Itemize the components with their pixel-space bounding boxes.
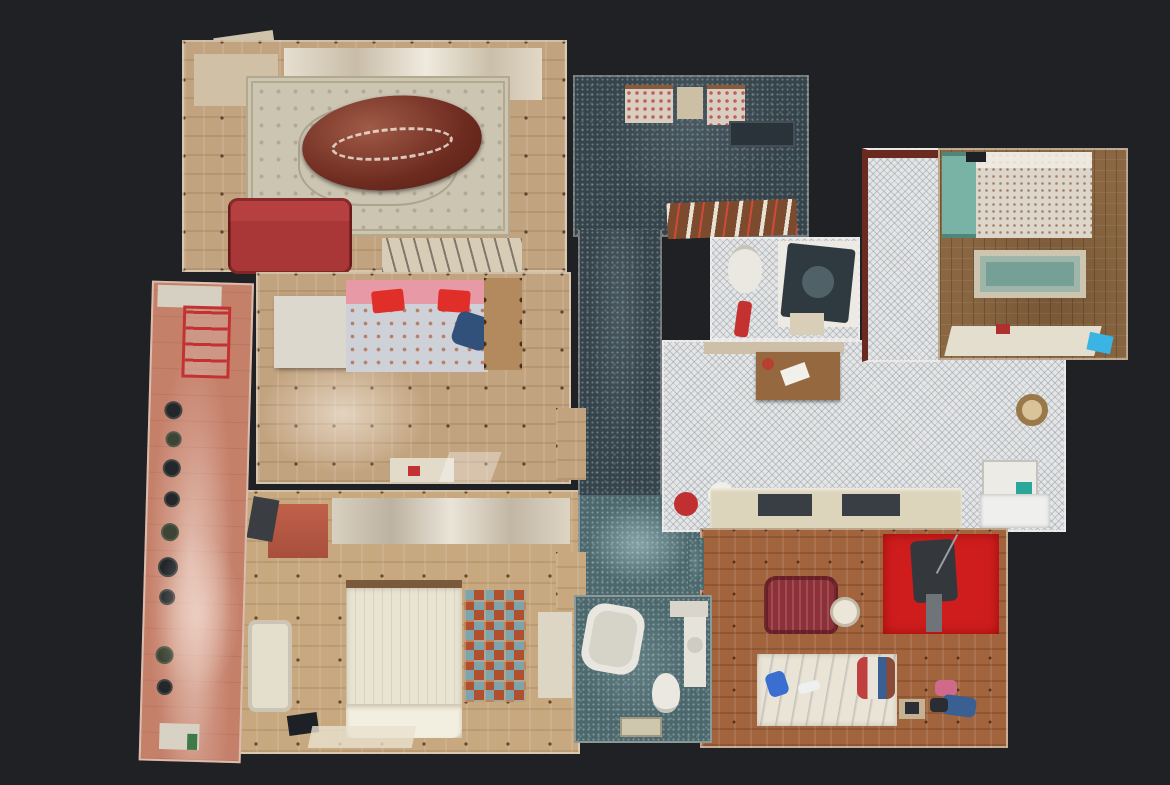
red-sofa — [228, 198, 352, 274]
side-shelf — [538, 612, 572, 698]
stove — [842, 494, 900, 516]
clothes-dark — [930, 698, 948, 712]
pillow-band — [976, 152, 1092, 168]
teal-pillows — [942, 152, 976, 238]
room-bedroom-middle[interactable] — [256, 272, 571, 484]
floor-clutter — [308, 726, 417, 748]
teal-bucket — [1016, 482, 1032, 494]
stool — [899, 699, 925, 719]
round-basket — [1016, 394, 1048, 426]
bench-sketches — [382, 238, 522, 274]
backpack — [857, 657, 895, 699]
lace-runner — [330, 123, 455, 165]
room-study[interactable] — [700, 528, 1008, 748]
paper-sheet — [780, 362, 810, 386]
double-bed — [346, 588, 462, 738]
tub-basin — [587, 609, 640, 670]
room-corridor[interactable] — [578, 230, 662, 498]
room-balcony[interactable] — [139, 281, 254, 764]
bath-mat — [620, 717, 662, 737]
washing-machine — [780, 243, 855, 324]
checkered-rug — [464, 590, 526, 702]
teal-rug — [974, 250, 1086, 298]
toilet — [728, 245, 762, 293]
room-bathroom[interactable] — [574, 595, 712, 743]
red-folding-chair — [181, 305, 231, 378]
plant-pot — [163, 459, 181, 477]
plant-pot — [164, 401, 182, 419]
armchair-white — [248, 620, 292, 712]
floorplan-canvas — [0, 0, 1170, 785]
maroon-armchair — [764, 576, 838, 634]
dark-object — [905, 702, 919, 714]
sink — [758, 494, 812, 516]
washer-drum — [801, 264, 836, 299]
room-bedroom-right[interactable] — [938, 148, 1128, 360]
wc-clutter — [790, 313, 824, 335]
round-side-table — [830, 597, 860, 627]
chair-base — [926, 594, 942, 632]
mirror-glint — [439, 452, 502, 482]
dark-item — [966, 152, 986, 162]
room-wc[interactable] — [710, 237, 860, 340]
room-hall[interactable] — [573, 75, 809, 237]
fridge — [980, 494, 1050, 528]
doormat — [729, 121, 795, 147]
room-kitchen[interactable] — [662, 340, 1066, 532]
bathtub — [579, 600, 648, 677]
shower-patch — [688, 538, 704, 590]
bedding-clutter — [944, 326, 1101, 356]
kitchen-table — [756, 352, 840, 400]
green-bottle — [187, 734, 197, 750]
wardrobe-mirror-strip — [332, 498, 570, 544]
doorway-bedroom-middle[interactable] — [556, 408, 586, 480]
room-passage[interactable] — [862, 148, 940, 362]
upholstered-chair — [625, 85, 673, 123]
plant-pot — [165, 431, 181, 447]
kitchen-counter — [710, 488, 962, 528]
floral-duvet — [976, 152, 1092, 238]
white-wardrobe — [274, 296, 350, 368]
red-pillow — [371, 288, 405, 313]
toilet — [652, 673, 680, 713]
red-pillow — [437, 289, 470, 313]
room-living[interactable] — [182, 40, 567, 272]
bookshelf-sideboard — [666, 199, 797, 240]
sun-patch — [153, 533, 243, 695]
red-item — [408, 466, 420, 476]
red-bowl — [762, 358, 774, 370]
red-item — [996, 324, 1010, 334]
clothes-pink — [935, 680, 957, 696]
sink-column — [684, 611, 706, 687]
red-pot — [674, 492, 698, 516]
room-bedroom-bottom[interactable] — [212, 490, 580, 754]
plant-pot — [164, 491, 180, 507]
door-lintel — [868, 150, 938, 158]
upholstered-chair — [707, 85, 745, 125]
red-mop — [734, 300, 753, 338]
hall-side-table — [677, 87, 703, 119]
sink-basin — [687, 637, 703, 653]
light-reflection — [258, 354, 428, 474]
bath-shelf — [670, 601, 708, 617]
dresser — [484, 278, 522, 370]
